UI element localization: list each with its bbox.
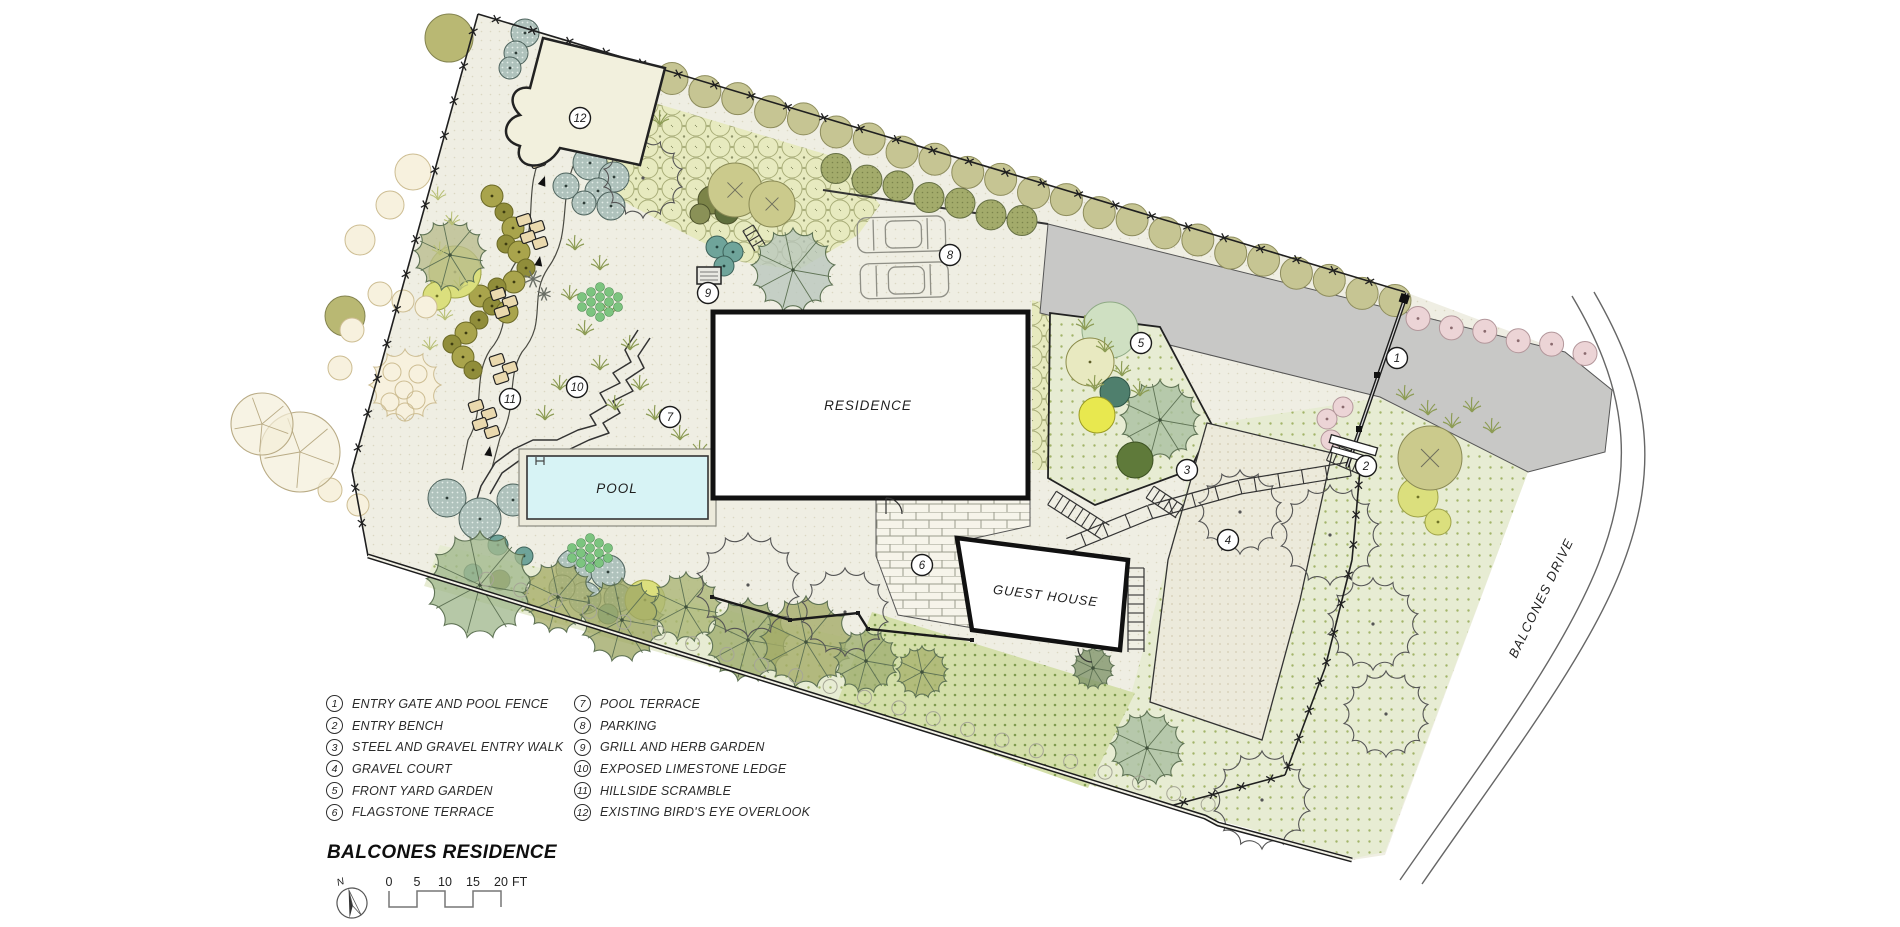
shrub <box>1215 237 1247 269</box>
legend-label: FRONT YARD GARDEN <box>352 784 493 798</box>
scale-tick: 5 <box>414 875 421 889</box>
plan-marker-3: 3 <box>1177 460 1198 481</box>
plan-marker-number: 7 <box>667 412 674 424</box>
plan-marker-number: 2 <box>1362 461 1370 473</box>
residence-label: RESIDENCE <box>824 398 912 413</box>
shrub <box>395 154 431 190</box>
shrub <box>1182 224 1214 256</box>
shrub <box>883 171 913 201</box>
legend-label: POOL TERRACE <box>600 697 700 711</box>
north-arrow-icon <box>334 885 370 921</box>
scale-tick: 10 <box>438 875 452 889</box>
shrub <box>1079 397 1115 433</box>
legend-label: STEEL AND GRAVEL ENTRY WALK <box>352 740 563 754</box>
legend-label: ENTRY BENCH <box>352 719 443 733</box>
shrub <box>1540 332 1564 356</box>
plan-marker-number: 10 <box>571 382 584 394</box>
shrub <box>1425 509 1451 535</box>
plan-marker-9: 9 <box>698 283 719 304</box>
shrub <box>328 356 352 380</box>
shrub <box>945 188 975 218</box>
plan-marker-number: 8 <box>947 250 954 262</box>
scale-tick: 20 <box>494 875 508 889</box>
scale-tick: 0 <box>386 875 393 889</box>
legend-number: 7 <box>574 695 591 712</box>
shrub <box>722 83 754 115</box>
shrub <box>572 191 596 215</box>
legend-item-5: 5FRONT YARD GARDEN <box>326 780 563 802</box>
plan-marker-number: 6 <box>919 560 926 572</box>
grill-icon <box>697 267 721 284</box>
shrub <box>1116 204 1148 236</box>
legend-label: GRAVEL COURT <box>352 762 452 776</box>
legend-item-7: 7POOL TERRACE <box>574 693 810 715</box>
plan-marker-6: 6 <box>912 555 933 576</box>
legend-label: EXISTING BIRD'S EYE OVERLOOK <box>600 805 810 819</box>
shrub <box>392 290 414 312</box>
legend-label: EXPOSED LIMESTONE LEDGE <box>600 762 786 776</box>
shrub <box>1083 197 1115 229</box>
plan-marker-number: 3 <box>1184 465 1191 477</box>
existing-tree-outline <box>231 393 293 455</box>
plan-marker-12: 12 <box>570 108 591 129</box>
scale-tick: 15 <box>466 875 480 889</box>
legend-column-1: 1ENTRY GATE AND POOL FENCE 2ENTRY BENCH … <box>326 693 563 823</box>
plan-marker-1: 1 <box>1387 348 1408 369</box>
legend-number: 1 <box>326 695 343 712</box>
plan-marker-number: 1 <box>1394 353 1400 365</box>
shrub <box>464 361 482 379</box>
legend-number: 9 <box>574 739 591 756</box>
legend-number: 3 <box>326 739 343 756</box>
street-label: BALCONES DRIVE <box>1506 536 1577 660</box>
plan-marker-number: 9 <box>705 288 712 300</box>
shrub <box>499 57 521 79</box>
shrub <box>503 271 525 293</box>
legend-label: HILLSIDE SCRAMBLE <box>600 784 731 798</box>
legend-label: FLAGSTONE TERRACE <box>352 805 494 819</box>
drawing-title: BALCONES RESIDENCE <box>327 842 557 864</box>
shrub <box>689 76 721 108</box>
shrub <box>425 14 473 62</box>
shrub <box>755 96 787 128</box>
plan-marker-number: 12 <box>574 113 587 125</box>
shrub <box>1050 184 1082 216</box>
shrub <box>340 318 364 342</box>
shrub <box>1406 307 1430 331</box>
legend-item-1: 1ENTRY GATE AND POOL FENCE <box>326 693 563 715</box>
scale-bar: 0 5 10 15 20 FT <box>386 875 528 907</box>
shrub <box>1149 217 1181 249</box>
plan-marker-2: 2 <box>1356 456 1377 477</box>
plan-marker-10: 10 <box>567 377 588 398</box>
plan-marker-number: 5 <box>1138 338 1145 350</box>
shrub <box>345 225 375 255</box>
shrub <box>1573 342 1597 366</box>
legend-number: 4 <box>326 760 343 777</box>
legend-item-10: 10EXPOSED LIMESTONE LEDGE <box>574 758 810 780</box>
shrub <box>1439 316 1463 340</box>
legend-item-11: 11HILLSIDE SCRAMBLE <box>574 780 810 802</box>
legend-item-8: 8PARKING <box>574 715 810 737</box>
shrub <box>1066 338 1114 386</box>
shrub <box>597 192 625 220</box>
legend-number: 10 <box>574 760 591 777</box>
shrub <box>976 200 1006 230</box>
shrub <box>376 191 404 219</box>
legend-item-6: 6FLAGSTONE TERRACE <box>326 801 563 823</box>
site-plan-canvas: RESIDENCE POOL GUEST HOUSE BALCONES DRIV… <box>0 0 1900 927</box>
shrub <box>1398 426 1462 490</box>
plan-marker-7: 7 <box>660 407 681 428</box>
legend-label: PARKING <box>600 719 657 733</box>
legend-number: 11 <box>574 782 591 799</box>
shrub <box>1317 409 1337 429</box>
legend-item-3: 3STEEL AND GRAVEL ENTRY WALK <box>326 736 563 758</box>
legend-item-2: 2ENTRY BENCH <box>326 715 563 737</box>
shrub <box>852 165 882 195</box>
legend-number: 5 <box>326 782 343 799</box>
plan-marker-number: 11 <box>504 394 516 406</box>
legend-item-4: 4GRAVEL COURT <box>326 758 563 780</box>
legend-label: ENTRY GATE AND POOL FENCE <box>352 697 548 711</box>
shrub <box>749 181 795 227</box>
legend-column-2: 7POOL TERRACE 8PARKING 9GRILL AND HERB G… <box>574 693 810 823</box>
legend-item-9: 9GRILL AND HERB GARDEN <box>574 736 810 758</box>
shrub <box>821 154 851 184</box>
plan-marker-11: 11 <box>500 389 521 410</box>
plan-marker-number: 4 <box>1225 535 1231 547</box>
legend-number: 8 <box>574 717 591 734</box>
shrub <box>1506 329 1530 353</box>
pool-label: POOL <box>596 481 638 496</box>
scale-unit: FT <box>512 875 528 889</box>
shrub <box>368 282 392 306</box>
legend-item-12: 12EXISTING BIRD'S EYE OVERLOOK <box>574 801 810 823</box>
shrub <box>914 183 944 213</box>
shrub <box>1117 442 1153 478</box>
shrub <box>415 296 437 318</box>
plan-marker-4: 4 <box>1218 530 1239 551</box>
legend-label: GRILL AND HERB GARDEN <box>600 740 765 754</box>
legend-number: 12 <box>574 804 591 821</box>
plan-marker-8: 8 <box>940 245 961 266</box>
shrub <box>1007 206 1037 236</box>
shrub <box>1473 319 1497 343</box>
plan-marker-5: 5 <box>1131 333 1152 354</box>
north-label: N <box>336 876 347 889</box>
legend-number: 2 <box>326 717 343 734</box>
shrub <box>690 204 710 224</box>
legend-number: 6 <box>326 804 343 821</box>
